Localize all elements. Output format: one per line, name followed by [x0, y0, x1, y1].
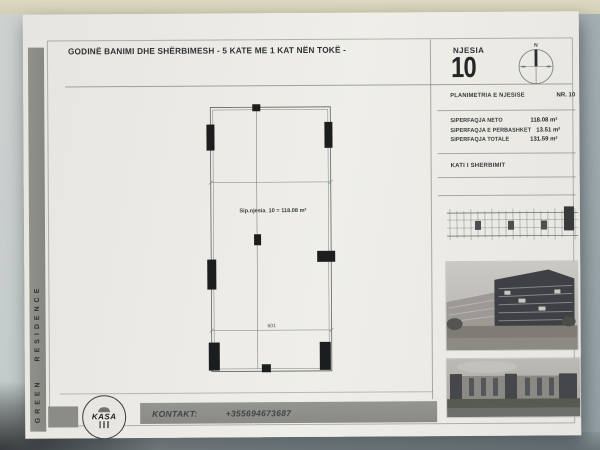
compass-icon: N — [511, 39, 561, 87]
brand-name: GREEN RESIDENCE — [34, 285, 42, 424]
area-value-totale: 131.59 m² — [530, 136, 557, 142]
logo-dome-icon — [98, 407, 110, 412]
architectural-sheet: GREEN RESIDENCE GODINË BANIMI DHE SHËRBI… — [23, 11, 582, 438]
logo-columns-icon — [99, 421, 110, 428]
compass-north-label: N — [534, 43, 538, 49]
area-label-neto: SIPERFAQJA NETO — [450, 118, 502, 124]
brand-bar: GREEN RESIDENCE — [28, 48, 46, 432]
plan-number: NR. 10 — [557, 92, 576, 98]
building-photo-facade — [447, 358, 580, 417]
floor-label: KATI I SHERBIMIT — [451, 163, 506, 169]
plan-title-row: PLANIMETRIA E NJESISE NR. 10 — [450, 92, 575, 99]
plan-title: PLANIMETRIA E NJESISE — [450, 93, 525, 99]
plan-dimension-label: 601 — [267, 323, 276, 329]
area-label-perbashket: SIPERFAQJA E PERBASHKET — [450, 127, 531, 133]
unit-floor-plan-drawing: 601 Sip.njesia_10 = 118.08 m² — [188, 94, 350, 395]
area-value-neto: 118.08 m² — [530, 117, 557, 123]
area-label-totale: SIPERFAQJA TOTALE — [450, 137, 509, 143]
area-value-perbashket: 13.51 m² — [536, 127, 560, 133]
logo-text: KASA — [92, 413, 117, 420]
unit-number: 10 — [451, 52, 476, 85]
service-floor-plan-drawing — [446, 204, 579, 245]
building-photo-corner — [446, 261, 578, 350]
table-row: SIPERFAQJA TOTALE 131.59 m² — [450, 136, 557, 146]
contact-bar: KONTAKT: +355694673687 — [140, 401, 437, 424]
kasa-logo: KASA — [82, 395, 126, 439]
contact-phone: +355694673687 — [226, 408, 292, 418]
area-table: SIPERFAQJA NETO 118.08 m² SIPERFAQJA E P… — [450, 117, 557, 146]
contact-label: KONTAKT: — [152, 408, 198, 418]
footer-gray-block — [48, 406, 78, 427]
plan-area-label: Sip.njesia_10 = 118.08 m² — [239, 207, 306, 214]
